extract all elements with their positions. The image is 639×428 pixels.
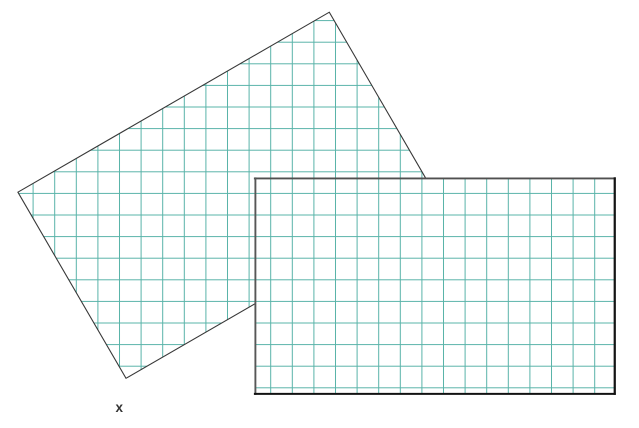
svg-text:x: x bbox=[116, 400, 124, 415]
